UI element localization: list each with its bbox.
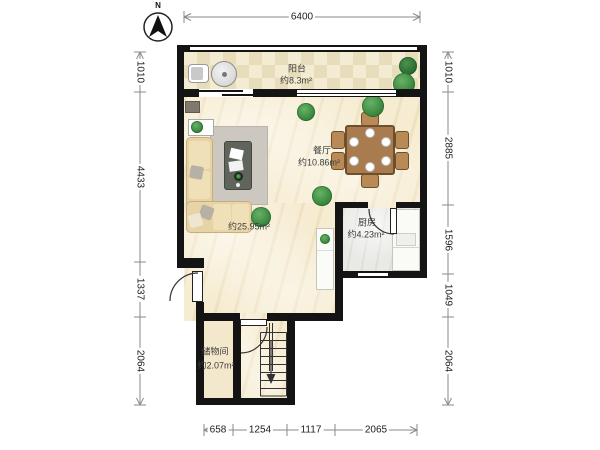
dining-name: 餐厅 bbox=[313, 147, 331, 156]
dim-right-2885: 2885 bbox=[443, 135, 454, 161]
dim-left-2064: 2064 bbox=[135, 348, 146, 374]
entry-door-arc bbox=[170, 273, 198, 301]
dim-bottom-1254: 1254 bbox=[247, 425, 273, 436]
balcony-area: 约8.3m² bbox=[280, 77, 312, 86]
storage-name: 储物间 bbox=[201, 348, 228, 357]
dim-right-1596: 1596 bbox=[443, 227, 454, 253]
dim-right-1049: 1049 bbox=[443, 282, 454, 308]
kitchen-area: 约4.23m² bbox=[347, 231, 384, 240]
compass-n-label: N bbox=[155, 2, 161, 10]
dining-area: 约10.86m² bbox=[298, 159, 340, 168]
stairs-down-arrow bbox=[267, 340, 276, 384]
dim-left-1337: 1337 bbox=[135, 276, 146, 302]
floor-plan: N 阳台 约8.3m² 餐厅 约10.86m² 约25.95m² 厨房 约4.2… bbox=[0, 0, 600, 450]
dim-left-4433: 4433 bbox=[135, 164, 146, 190]
dim-bottom-1117: 1117 bbox=[299, 425, 324, 436]
balcony-name: 阳台 bbox=[288, 65, 306, 74]
dim-right-1010: 1010 bbox=[443, 59, 454, 85]
north-arrow-compass bbox=[144, 13, 172, 41]
kitchen-name: 厨房 bbox=[358, 219, 376, 228]
dim-left-1010: 1010 bbox=[135, 59, 146, 85]
dim-top-6400: 6400 bbox=[289, 12, 315, 23]
living-area: 约25.95m² bbox=[228, 223, 270, 232]
dim-bottom-658: 658 bbox=[208, 425, 229, 436]
storage-area: 约2.07m² bbox=[197, 362, 234, 371]
dim-right-2064: 2064 bbox=[443, 348, 454, 374]
stairs bbox=[261, 323, 287, 396]
dim-bottom-2065: 2065 bbox=[363, 425, 389, 436]
